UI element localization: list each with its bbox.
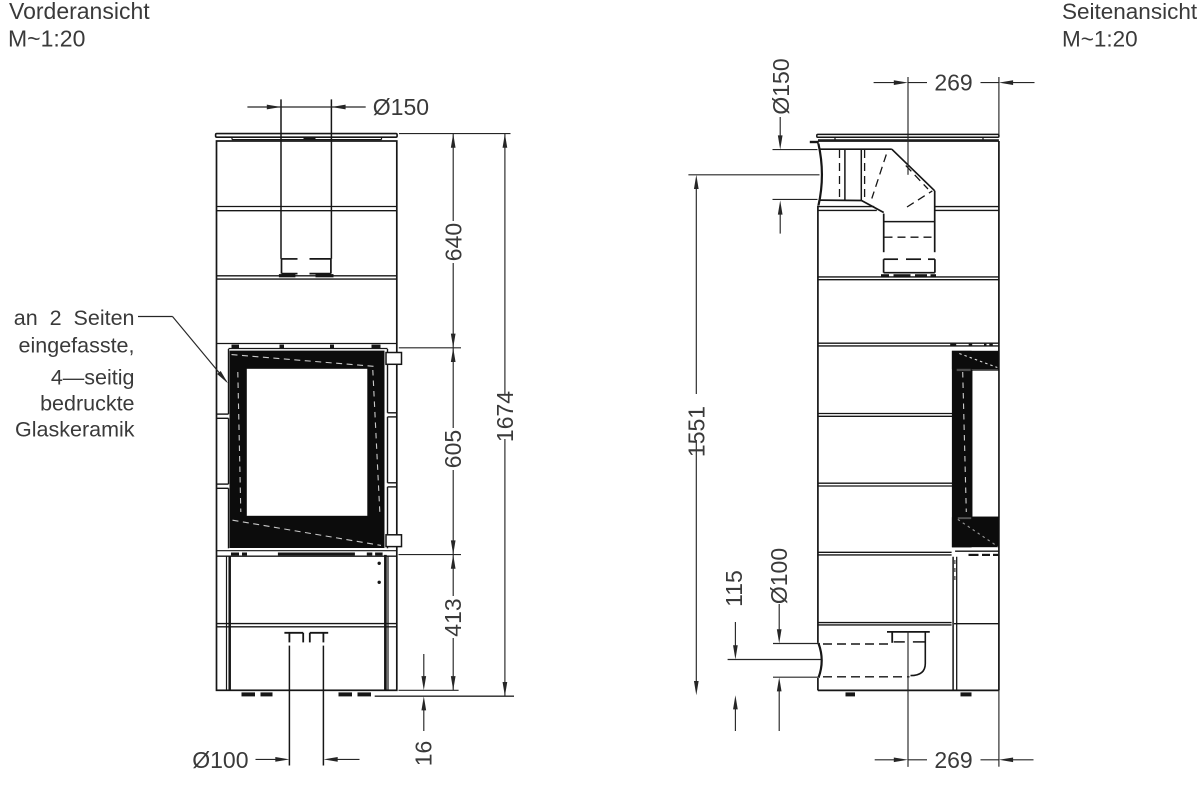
svg-text:4—seitig: 4—seitig — [51, 365, 135, 389]
svg-text:Ø100: Ø100 — [766, 548, 792, 604]
svg-text:269: 269 — [934, 70, 972, 96]
svg-text:Glaskeramik: Glaskeramik — [15, 417, 135, 441]
svg-text:an 2 Seiten: an 2 Seiten — [14, 306, 135, 330]
svg-text:115: 115 — [721, 570, 747, 607]
svg-text:16: 16 — [411, 741, 437, 767]
svg-text:1674: 1674 — [492, 391, 518, 442]
svg-text:Ø100: Ø100 — [192, 747, 248, 773]
svg-text:bedruckte: bedruckte — [40, 391, 134, 415]
svg-text:1551: 1551 — [684, 406, 710, 457]
svg-text:413: 413 — [440, 598, 466, 636]
svg-text:M~1:20: M~1:20 — [1062, 27, 1138, 52]
svg-text:Ø150: Ø150 — [768, 58, 794, 114]
svg-text:Vorderansicht: Vorderansicht — [9, 0, 150, 24]
svg-text:605: 605 — [440, 430, 466, 468]
svg-text:M~1:20: M~1:20 — [8, 26, 85, 52]
svg-text:640: 640 — [441, 223, 467, 261]
svg-text:Seitenansicht: Seitenansicht — [1062, 0, 1198, 24]
svg-text:eingefasste,: eingefasste, — [19, 333, 135, 357]
svg-text:Ø150: Ø150 — [373, 94, 429, 120]
svg-text:269: 269 — [934, 747, 972, 773]
